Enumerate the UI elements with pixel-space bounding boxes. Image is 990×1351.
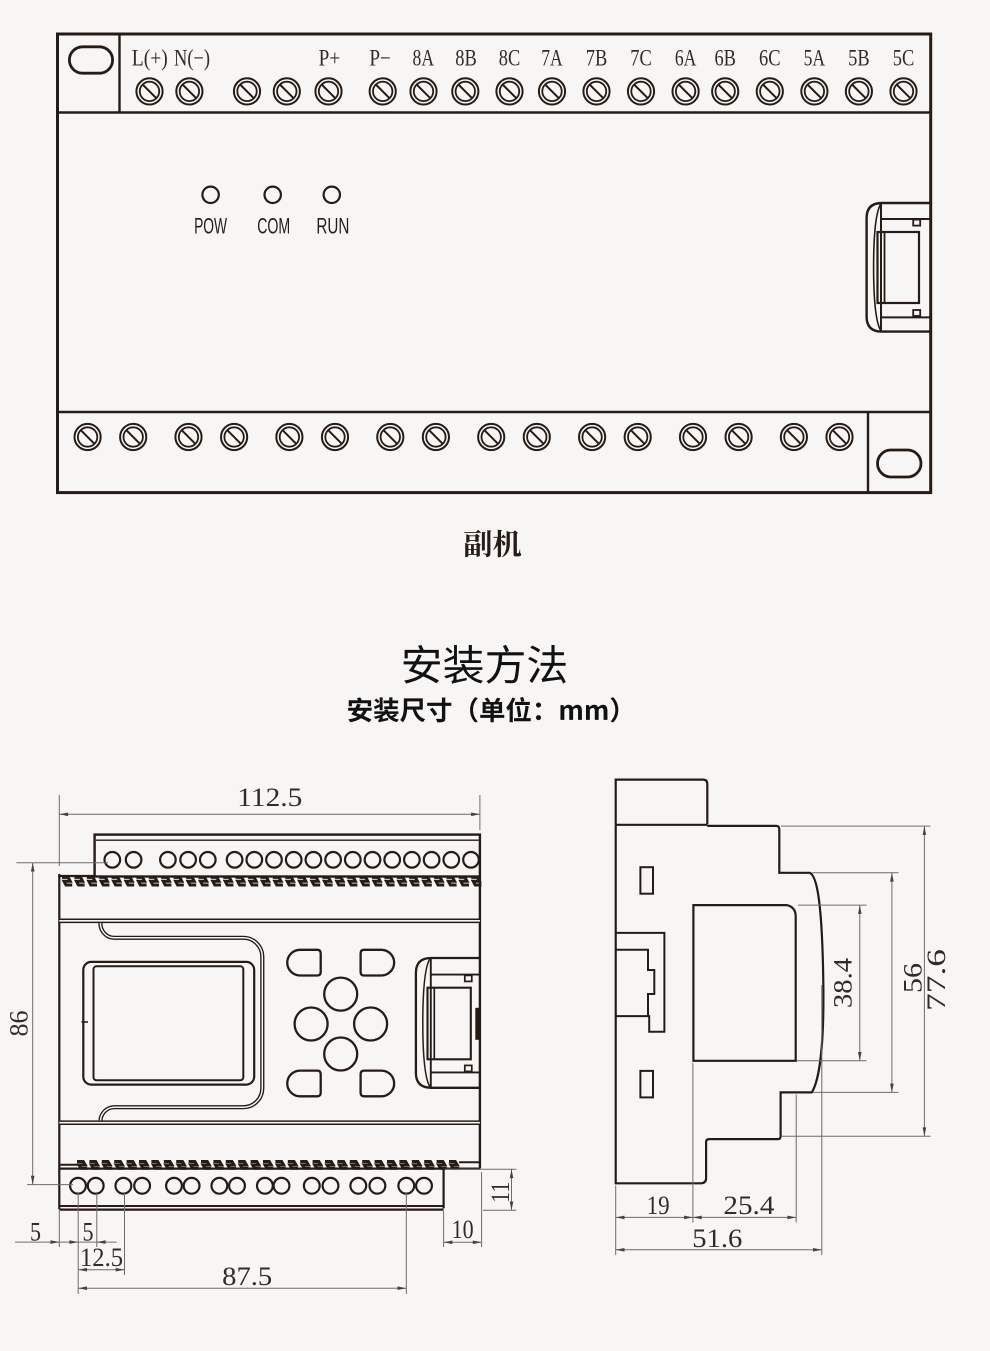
svg-text:RUN: RUN (316, 214, 349, 239)
svg-text:COM: COM (257, 214, 290, 239)
svg-text:6B: 6B (714, 46, 736, 71)
svg-text:6A: 6A (675, 46, 697, 71)
svg-text:7C: 7C (630, 46, 652, 71)
svg-text:10: 10 (452, 1214, 474, 1244)
svg-text:5C: 5C (893, 46, 915, 71)
svg-text:6C: 6C (759, 46, 781, 71)
svg-text:7A: 7A (541, 46, 563, 71)
svg-text:51.6: 51.6 (692, 1223, 742, 1253)
svg-text:7B: 7B (586, 46, 608, 71)
svg-text:L(+): L(+) (132, 46, 168, 71)
svg-text:8A: 8A (413, 46, 435, 71)
svg-text:N(−): N(−) (174, 46, 210, 71)
svg-text:112.5: 112.5 (237, 782, 302, 812)
svg-text:19: 19 (647, 1190, 670, 1220)
svg-text:POW: POW (194, 214, 227, 239)
svg-text:P−: P− (369, 46, 391, 71)
svg-text:5A: 5A (804, 46, 826, 71)
svg-text:P+: P+ (319, 46, 341, 71)
svg-text:56: 56 (897, 963, 927, 993)
svg-text:11: 11 (485, 1182, 515, 1203)
svg-text:8C: 8C (499, 46, 521, 71)
svg-text:8B: 8B (455, 46, 477, 71)
svg-text:86: 86 (3, 1011, 33, 1037)
svg-text:5: 5 (30, 1217, 41, 1247)
svg-text:38.4: 38.4 (828, 958, 858, 1008)
svg-text:25.4: 25.4 (723, 1190, 774, 1220)
svg-text:87.5: 87.5 (222, 1261, 272, 1291)
svg-text:5B: 5B (848, 46, 870, 71)
svg-text:12.5: 12.5 (80, 1242, 123, 1272)
